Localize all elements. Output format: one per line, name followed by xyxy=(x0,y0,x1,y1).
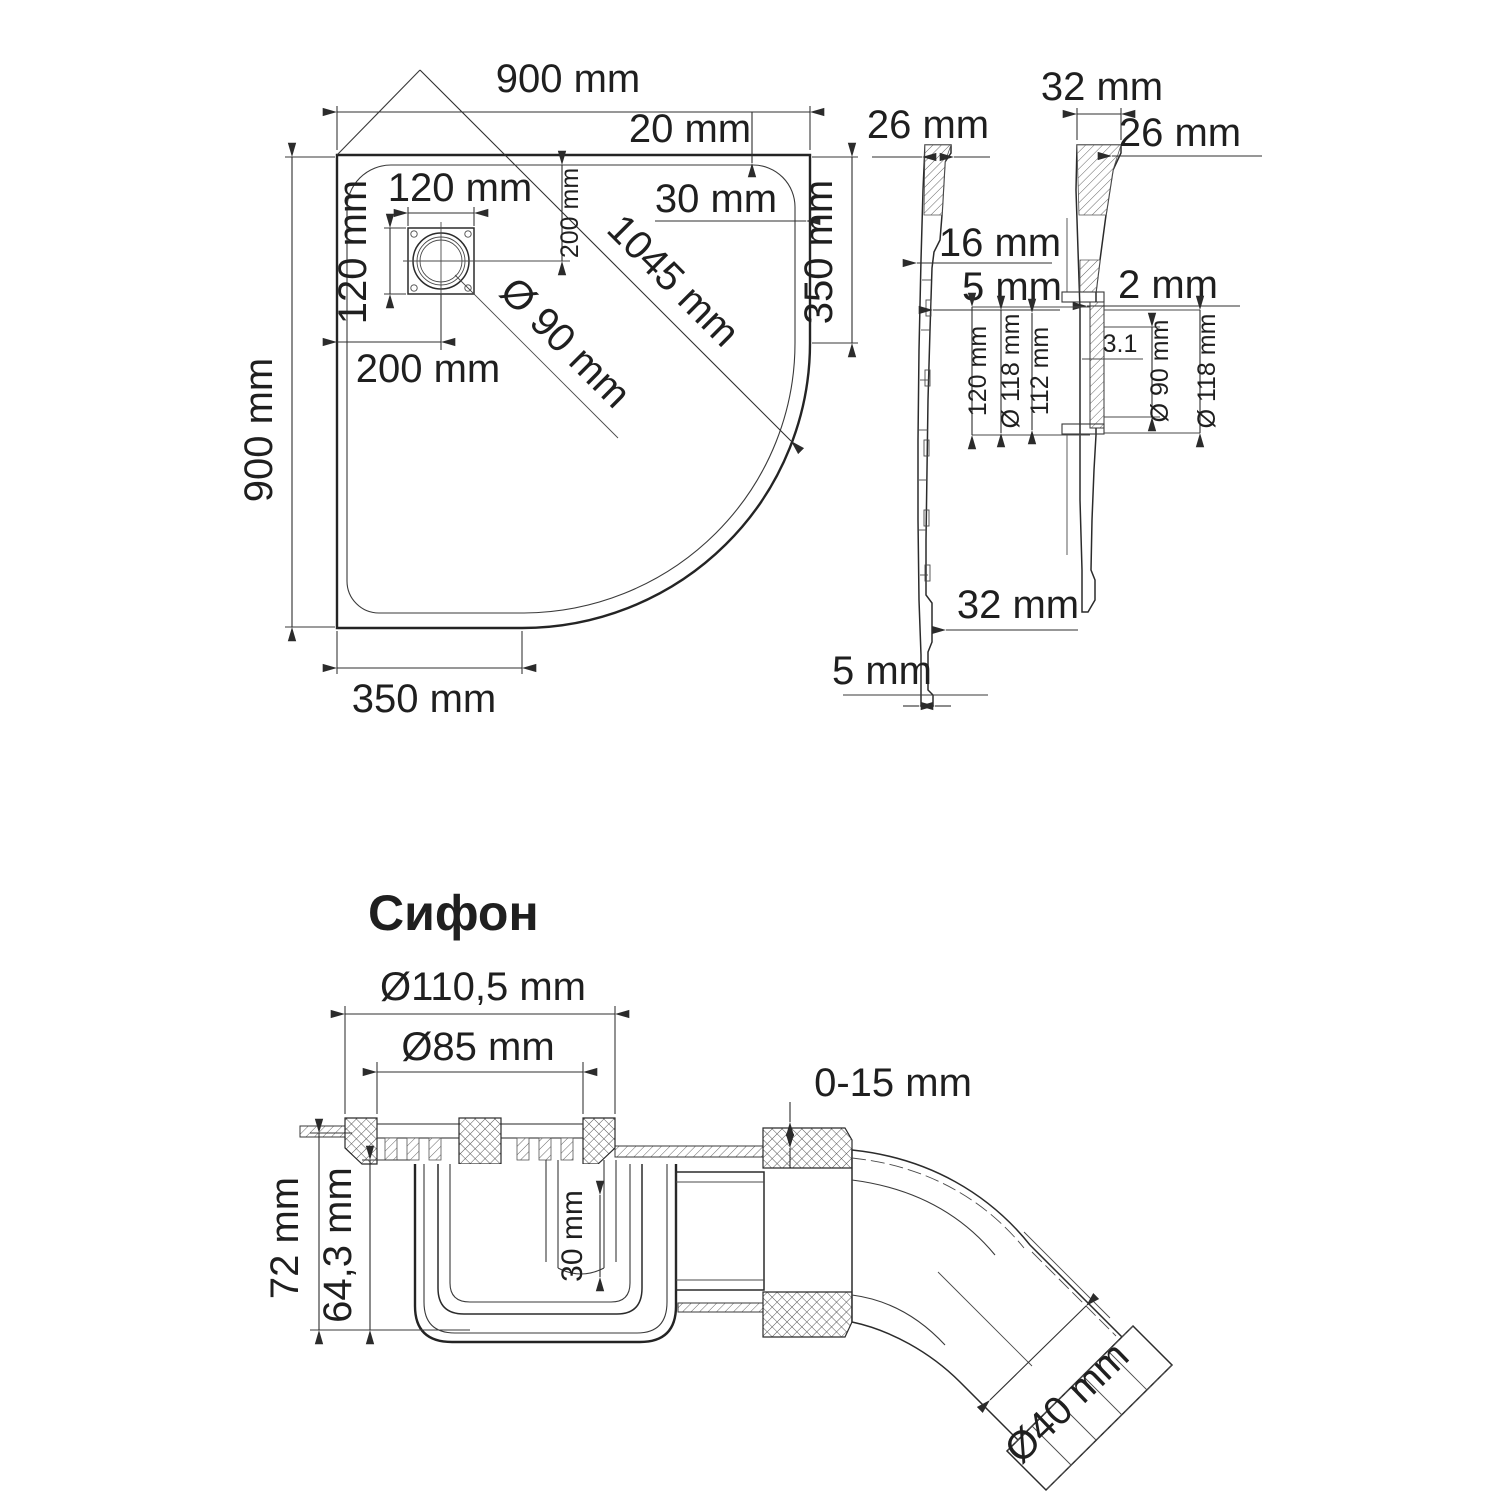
dim-drain-diameter-label: Ø 90 mm xyxy=(491,269,638,416)
dim-200-top-label: 200 mm xyxy=(556,168,584,258)
dim-20-label: 20 mm xyxy=(629,107,751,151)
detail-118-left-label: Ø 118 mm xyxy=(997,314,1025,429)
dim-26-left-label: 26 mm xyxy=(867,103,989,147)
dim-350-bottom-label: 350 mm xyxy=(352,677,497,721)
profile-drain-hatch-mid xyxy=(1080,260,1100,292)
dim-16-label: 16 mm xyxy=(939,221,1061,265)
detail-118-right-label: Ø 118 mm xyxy=(1193,314,1221,429)
drain-flange-plate xyxy=(1090,302,1104,428)
dim-120h-label: 120 mm xyxy=(388,166,533,210)
profile-plain-hatch-top xyxy=(924,145,951,215)
dim-85-label: Ø85 mm xyxy=(401,1025,554,1069)
detail-90-label: Ø 90 mm xyxy=(1146,320,1174,423)
technical-drawing-page: 1045 mm Ø 90 mm 900 mm 20 mm 30 mm 120 m… xyxy=(0,0,1500,1500)
drain-top-view xyxy=(403,222,570,302)
dim-350-right-label: 350 mm xyxy=(797,180,841,325)
siphon-heading: Сифон xyxy=(368,885,539,941)
dim-30-label: 30 mm xyxy=(655,177,777,221)
dim-32-bottom-label: 32 mm xyxy=(957,583,1079,627)
dim-643-label: 64,3 mm xyxy=(316,1167,360,1323)
flange-ring-right xyxy=(583,1118,615,1164)
side-view-drain: 32 mm 26 mm 2 mm 120 mm Ø 118 mm 112 mm … xyxy=(964,65,1262,612)
tray-floor-left xyxy=(300,1126,345,1137)
dim-72-label: 72 mm xyxy=(263,1177,307,1299)
dim-1105-label: Ø110,5 mm xyxy=(380,965,586,1009)
tray-floor-right-bottom xyxy=(678,1303,763,1312)
siphon-section: Сифон xyxy=(263,885,1172,1490)
dim-32-top-label: 32 mm xyxy=(1041,65,1163,109)
dim-015-label: 0-15 mm xyxy=(814,1061,972,1105)
detail-120-label: 120 mm xyxy=(964,326,992,416)
outlet-nut-top xyxy=(763,1128,852,1168)
outlet-collar xyxy=(676,1172,764,1290)
flange-ring-left xyxy=(345,1118,377,1164)
dim-26-right-label: 26 mm xyxy=(1119,111,1241,155)
dim-200-left-label: 200 mm xyxy=(356,347,501,391)
tray-floor-right xyxy=(615,1146,763,1157)
plan-view: 1045 mm Ø 90 mm 900 mm 20 mm 30 mm 120 m… xyxy=(237,57,858,721)
dim-120v-label: 120 mm xyxy=(331,180,375,325)
drawing-canvas: 1045 mm Ø 90 mm 900 mm 20 mm 30 mm 120 m… xyxy=(0,0,1500,1500)
dim-diagonal-label: 1045 mm xyxy=(599,206,748,355)
drain-grate xyxy=(377,1118,583,1164)
outlet-nut-bottom xyxy=(763,1292,852,1337)
dim-30-seal-label: 30 mm xyxy=(556,1190,589,1282)
dim-5-bottom-label: 5 mm xyxy=(832,649,932,693)
dim-900-left-label: 900 mm xyxy=(237,358,281,503)
dim-5-wall-label: 5 mm xyxy=(962,265,1062,309)
detail-112-label: 112 mm xyxy=(1026,327,1054,415)
dim-2-label: 2 mm xyxy=(1118,263,1218,307)
detail-31-label: 3.1 xyxy=(1103,330,1138,358)
dim-900-top-label: 900 mm xyxy=(496,57,641,101)
